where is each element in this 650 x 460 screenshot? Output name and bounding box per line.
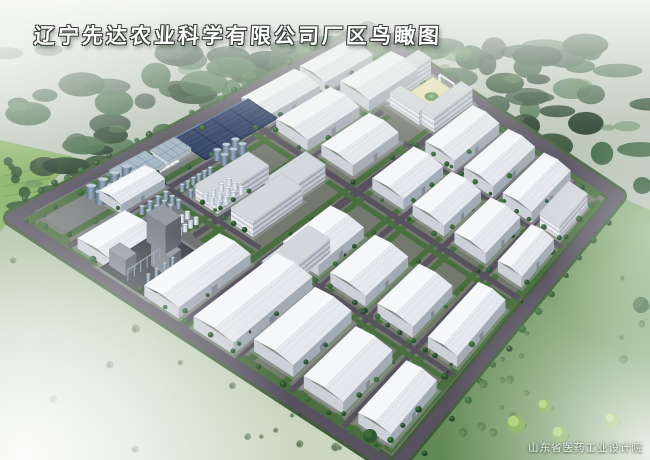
mist-layer	[0, 0, 650, 460]
image-title: 辽宁先达农业科学有限公司厂区鸟瞰图	[33, 20, 443, 50]
designer-credit: 山东省医药工业设计院	[528, 440, 643, 455]
scene-svg	[0, 0, 650, 460]
factory-aerial-rendering: 辽宁先达农业科学有限公司厂区鸟瞰图 山东省医药工业设计院	[0, 0, 650, 460]
